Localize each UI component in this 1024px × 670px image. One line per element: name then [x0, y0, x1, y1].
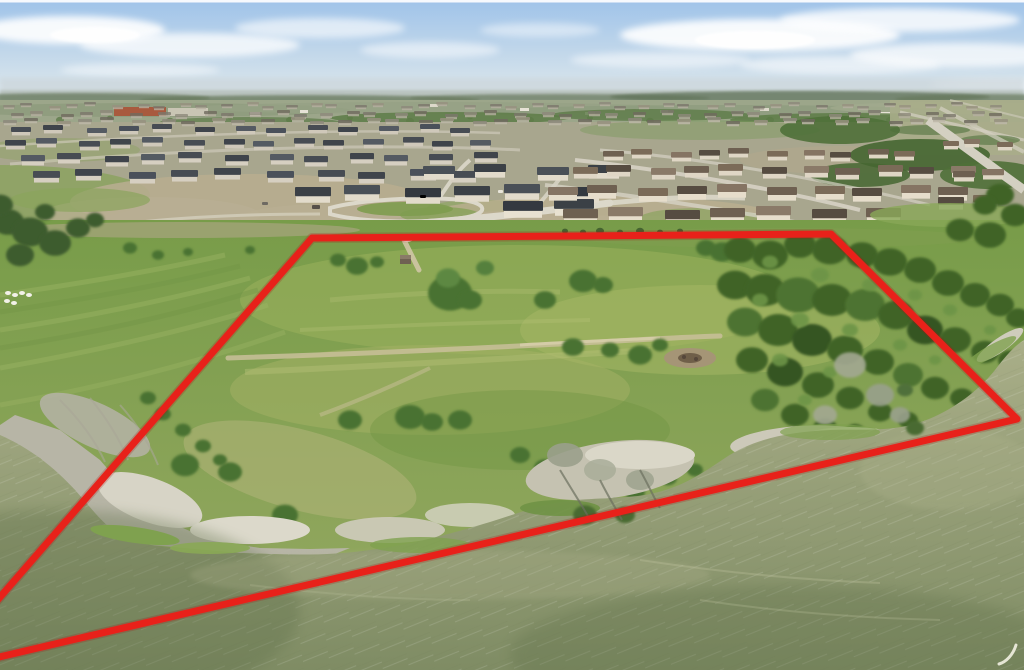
- aerial-photo: [0, 0, 1024, 670]
- aerial-photo-listing: [0, 0, 1024, 670]
- photo-top-border: [0, 0, 1024, 3]
- photo-layers: [0, 0, 1024, 670]
